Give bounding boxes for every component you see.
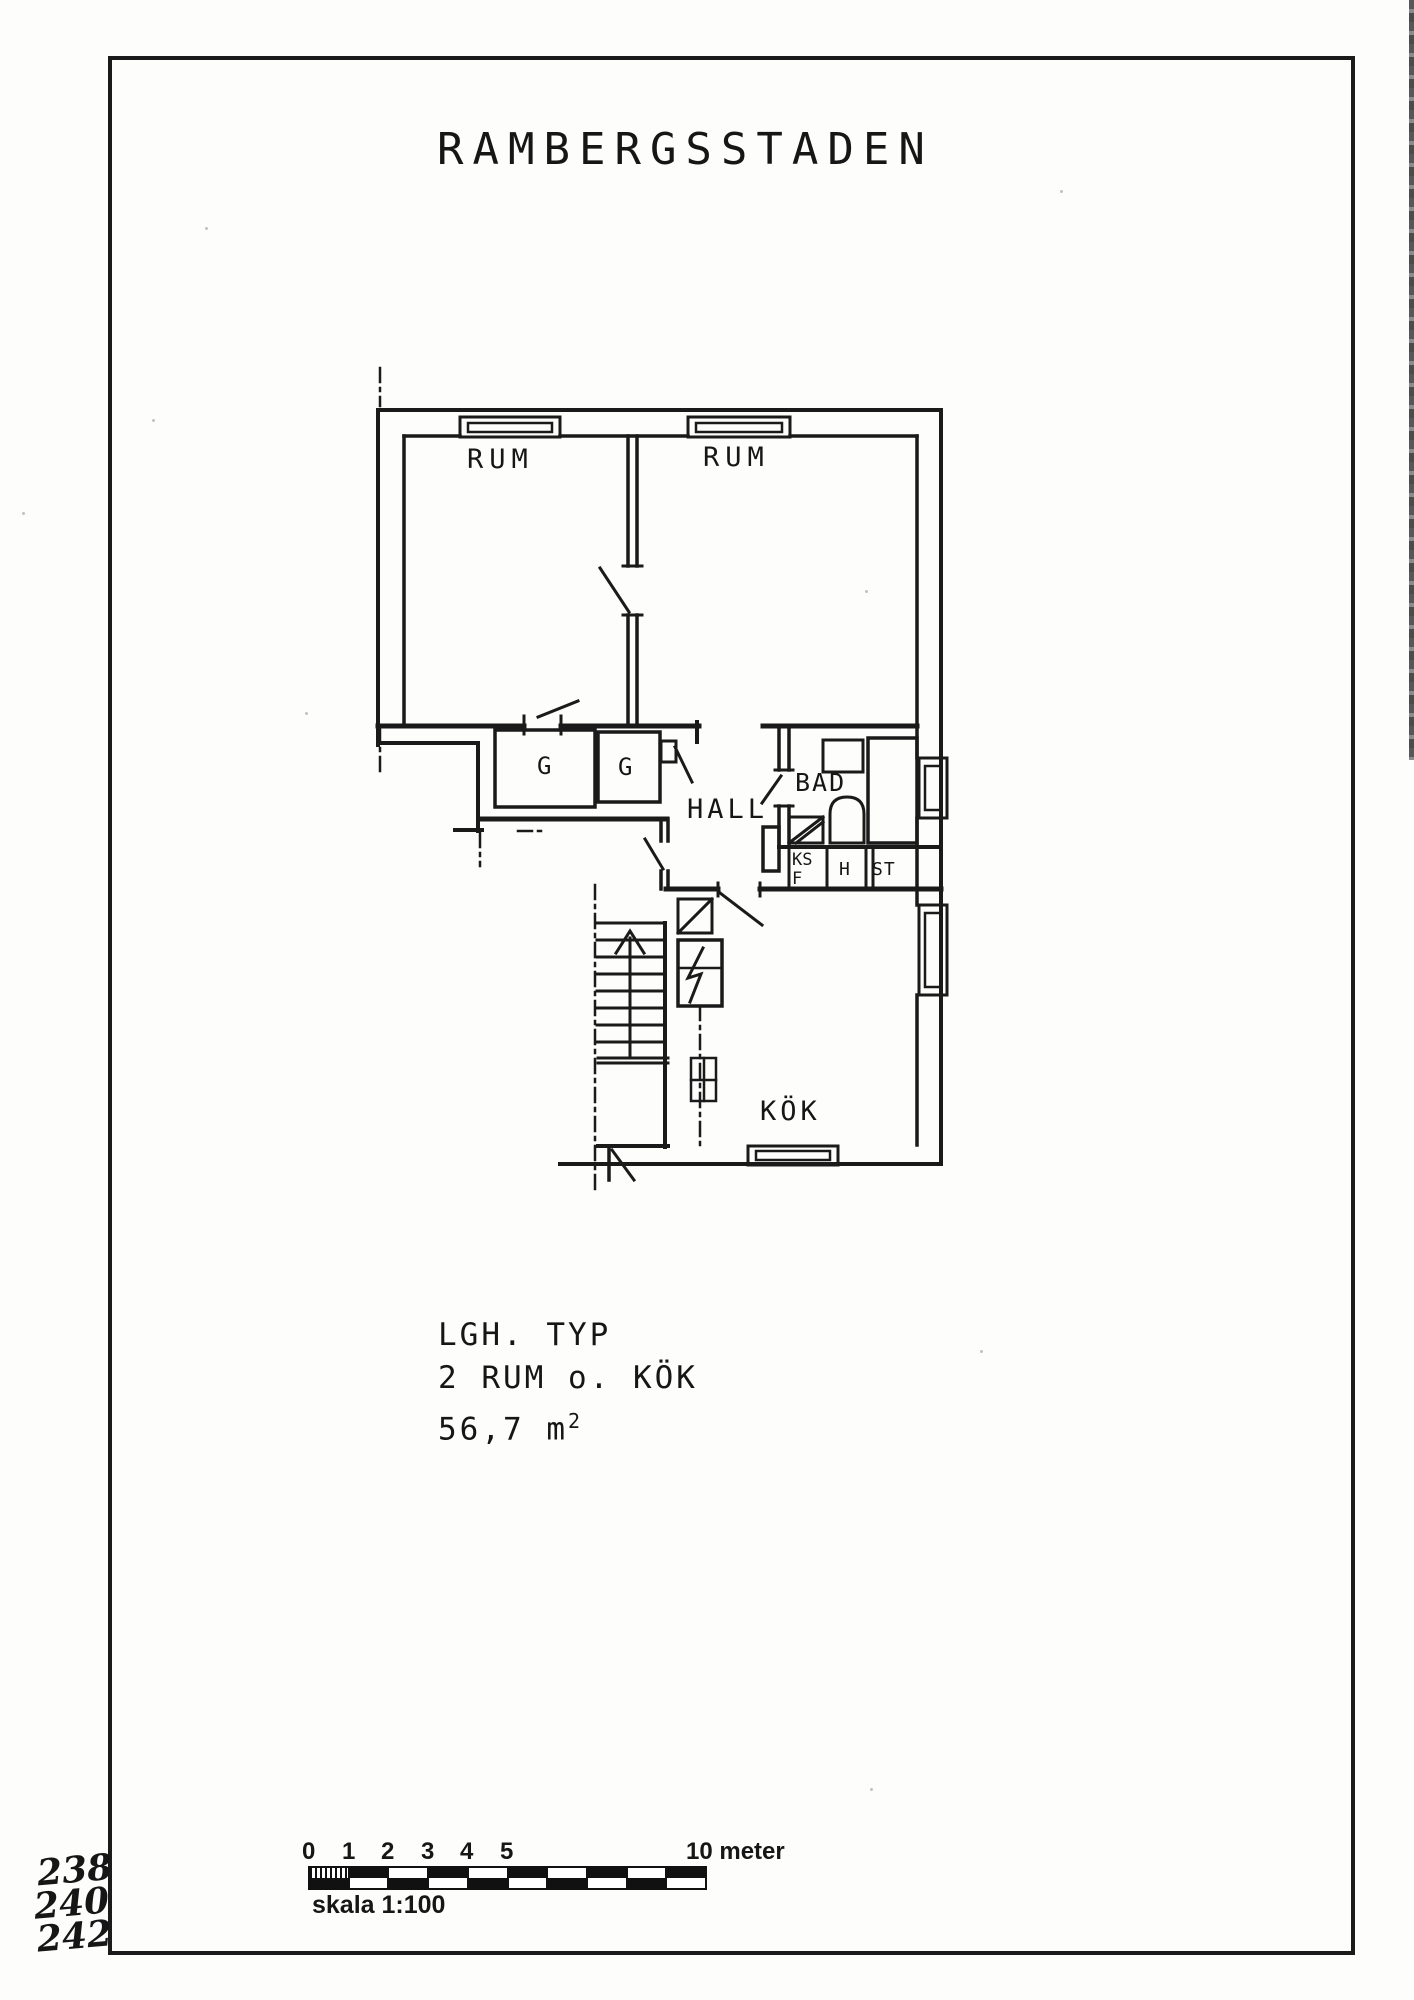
section-lines bbox=[380, 368, 700, 1192]
room-label-f: F bbox=[792, 869, 802, 889]
scan-speck bbox=[865, 590, 868, 593]
scale-tick-2: 2 bbox=[381, 1838, 394, 1866]
toilet bbox=[830, 797, 864, 843]
scale-tick-0: 0 bbox=[302, 1838, 315, 1866]
margin-note: 242 bbox=[36, 1917, 120, 1957]
door-rum1-rum2 bbox=[600, 568, 629, 612]
apartment-type-label: LGH. TYP bbox=[438, 1314, 698, 1357]
electric-symbol bbox=[688, 948, 703, 1002]
scale-tick-3: 3 bbox=[421, 1838, 434, 1866]
room-label-rum1: RUM bbox=[467, 444, 534, 475]
scan-speck bbox=[152, 419, 155, 422]
apartment-info: LGH. TYP 2 RUM o. KÖK 56,7 m2 bbox=[438, 1314, 698, 1451]
apartment-area: 56,7 m2 bbox=[438, 1400, 698, 1451]
staircase bbox=[597, 923, 668, 1180]
scale-bar bbox=[308, 1866, 707, 1890]
door-rum1 bbox=[538, 701, 578, 717]
scan-speck bbox=[22, 512, 25, 515]
apartment-rooms-label: 2 RUM o. KÖK bbox=[438, 1357, 698, 1400]
door-kitchen bbox=[720, 893, 762, 925]
room-label-kok: KÖK bbox=[760, 1096, 821, 1127]
scale-caption: skala 1:100 bbox=[312, 1891, 445, 1920]
scan-speck bbox=[205, 227, 208, 230]
room-label-bad: BAD bbox=[795, 768, 846, 797]
bathtub bbox=[868, 738, 917, 843]
scan-speck bbox=[870, 1788, 873, 1791]
room-label-h: H bbox=[839, 859, 851, 880]
door-entry bbox=[645, 839, 663, 869]
scan-speck bbox=[305, 712, 308, 715]
scale-tick-1: 1 bbox=[342, 1838, 355, 1866]
scale-end-label: 10 meter bbox=[686, 1838, 785, 1866]
room-label-ks: KS bbox=[792, 850, 812, 870]
scale-tick-4: 4 bbox=[460, 1838, 473, 1866]
window-symbols bbox=[460, 417, 947, 1165]
closet-label-g2: G bbox=[618, 753, 632, 781]
area-superscript: 2 bbox=[568, 1409, 583, 1433]
scanned-floor-plan-page: RAMBERGSSTADEN bbox=[0, 0, 1414, 2000]
closet-label-g1: G bbox=[537, 752, 551, 780]
room-label-st: ST bbox=[872, 859, 896, 880]
floor-plan-drawing bbox=[0, 0, 1414, 2000]
handwritten-margin-notes: 238 240 242 bbox=[36, 1851, 119, 1956]
scan-speck bbox=[1060, 190, 1063, 193]
door-rum2-hall bbox=[675, 747, 692, 782]
room-label-rum2: RUM bbox=[703, 442, 770, 473]
scale-tick-5: 5 bbox=[500, 1838, 513, 1866]
scan-speck bbox=[980, 1350, 983, 1353]
interior-walls bbox=[378, 436, 941, 1147]
room-label-hall: HALL bbox=[687, 794, 768, 825]
